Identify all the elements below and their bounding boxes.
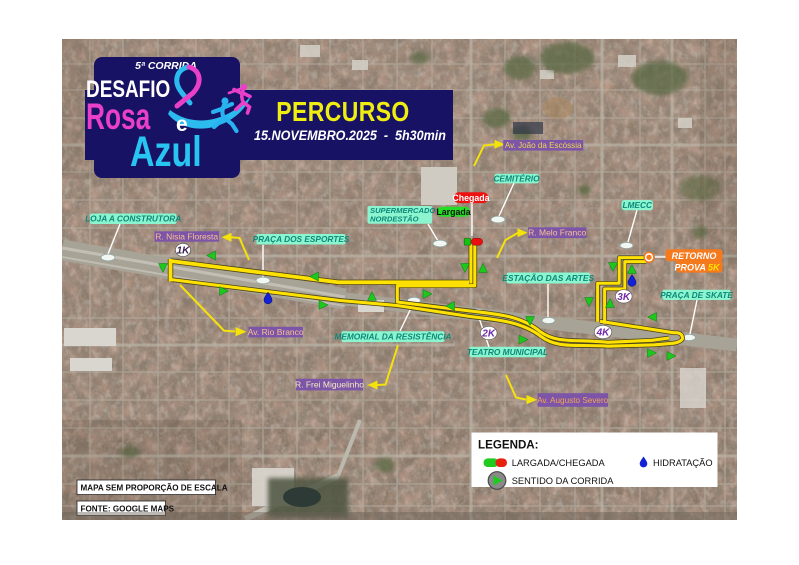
svg-text:R. Melo Franco: R. Melo Franco xyxy=(528,228,586,238)
svg-text:NORDESTÃO: NORDESTÃO xyxy=(370,215,419,224)
svg-text:4K: 4K xyxy=(596,328,611,339)
svg-text:Largada: Largada xyxy=(436,207,470,217)
svg-text:R. Frei Miguelinho: R. Frei Miguelinho xyxy=(295,379,364,389)
svg-text:MAPA SEM PROPORÇÃO DE ESCALA: MAPA SEM PROPORÇÃO DE ESCALA xyxy=(81,483,228,492)
svg-text:PRAÇA DOS ESPORTES: PRAÇA DOS ESPORTES xyxy=(253,234,350,244)
svg-text:PROVA 5K: PROVA 5K xyxy=(674,262,721,272)
svg-text:3K: 3K xyxy=(617,292,631,303)
svg-text:1K: 1K xyxy=(177,246,191,257)
svg-text:2K: 2K xyxy=(481,329,496,340)
svg-text:LOJA A CONSTRUTORA: LOJA A CONSTRUTORA xyxy=(85,214,181,224)
svg-text:Chegada: Chegada xyxy=(452,193,489,203)
svg-text:SENTIDO DA CORRIDA: SENTIDO DA CORRIDA xyxy=(512,476,615,486)
svg-text:ESTAÇÃO DAS ARTES: ESTAÇÃO DAS ARTES xyxy=(502,273,594,283)
svg-text:Av. Rio Branco: Av. Rio Branco xyxy=(248,327,304,337)
svg-text:PRAÇA DE SKATE: PRAÇA DE SKATE xyxy=(660,290,733,300)
svg-text:Av. Augusto Severo: Av. Augusto Severo xyxy=(537,396,609,405)
svg-text:MEMORIAL DA RESISTÊNCIA: MEMORIAL DA RESISTÊNCIA xyxy=(334,331,451,342)
svg-text:R. Nisia Floresta: R. Nisia Floresta xyxy=(155,231,218,241)
svg-text:LARGADA/CHEGADA: LARGADA/CHEGADA xyxy=(512,458,606,468)
svg-text:LMECC: LMECC xyxy=(622,200,653,210)
svg-text:Av. João da Escóssia: Av. João da Escóssia xyxy=(505,141,582,150)
svg-text:RETORNO: RETORNO xyxy=(672,251,717,261)
svg-text:HIDRATAÇÃO: HIDRATAÇÃO xyxy=(653,458,713,468)
svg-text:TEATRO MUNICIPAL: TEATRO MUNICIPAL xyxy=(467,347,548,357)
svg-text:CEMITÉRIO: CEMITÉRIO xyxy=(493,173,540,183)
svg-text:LEGENDA:: LEGENDA: xyxy=(478,439,539,452)
